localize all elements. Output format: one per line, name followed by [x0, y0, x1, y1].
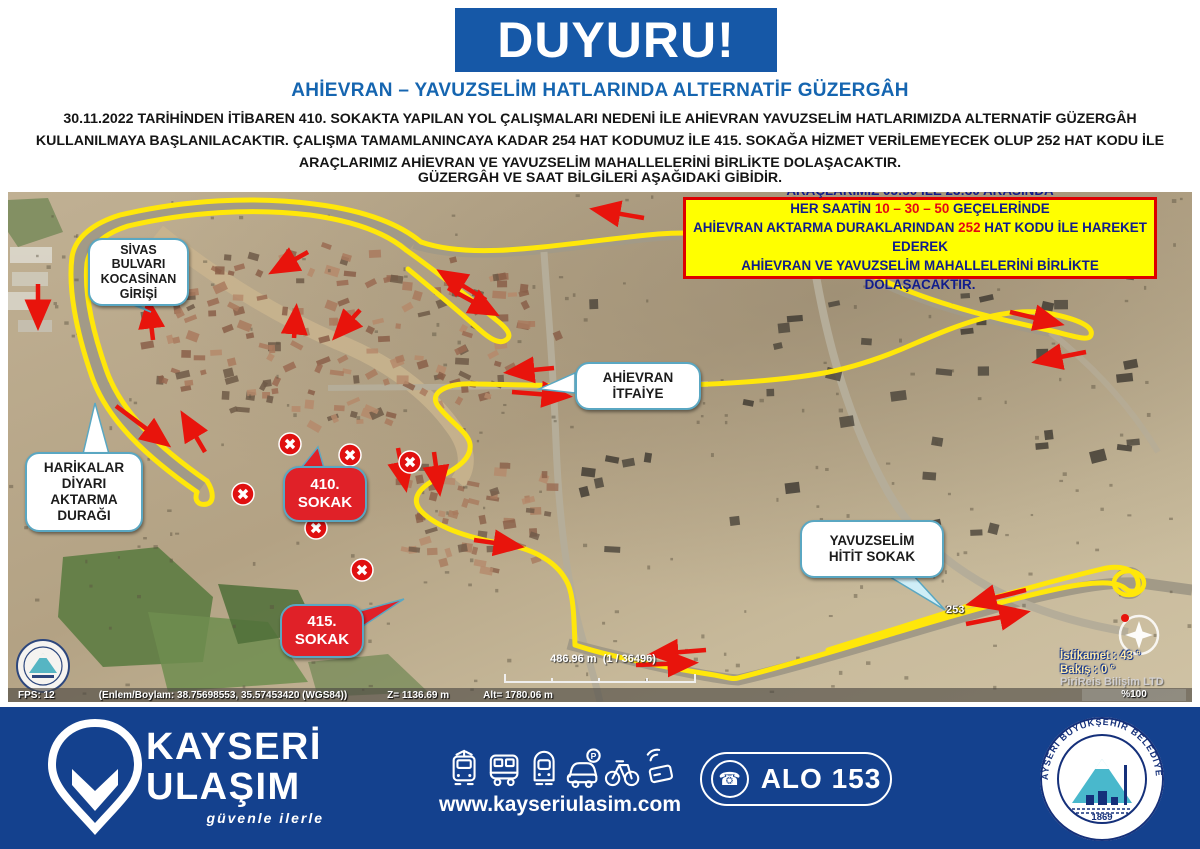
- website-url: www.kayseriulasim.com: [425, 793, 695, 817]
- callout-yavuzselim-hitit: YAVUZSELİM HİTİT SOKAK: [800, 520, 944, 578]
- altitude-readout: Alt= 1780.06 m: [483, 690, 553, 701]
- callout-410-sokak: 410. SOKAK: [283, 466, 367, 522]
- info-line-4: AHİEVRAN VE YAVUZSELİM MAHALLELERİNİ BİR…: [686, 257, 1154, 295]
- satellite-route-map: ARAÇLARIMIZ 05:50 İLE 23:30 ARASINDA HER…: [8, 192, 1192, 702]
- seal-year: 1869: [1091, 812, 1112, 823]
- brand-wordmark: KAYSERİ ULAŞIM: [146, 727, 322, 807]
- callout-harikalar-diyari: HARİKALAR DİYARI AKTARMA DURAĞI: [25, 452, 143, 532]
- contactless-card-icon: [648, 750, 673, 783]
- brand-line-1: KAYSERİ: [146, 727, 322, 767]
- callout-415-sokak: 415. SOKAK: [280, 604, 364, 658]
- bicycle-icon: [606, 761, 638, 785]
- brand-line-2: ULAŞIM: [146, 767, 322, 807]
- road-number-label: 253: [946, 604, 964, 616]
- car-parking-icon: P: [568, 749, 600, 787]
- schedule-info-box: ARAÇLARIMIZ 05:50 İLE 23:30 ARASINDA HER…: [683, 197, 1157, 279]
- title-text: DUYURU!: [497, 11, 735, 69]
- svg-text:P: P: [591, 751, 597, 761]
- subtitle: AHİEVRAN – YAVUZSELİM HATLARINDA ALTERNA…: [0, 80, 1200, 102]
- announcement-poster: DUYURU! AHİEVRAN – YAVUZSELİM HATLARINDA…: [0, 0, 1200, 849]
- compass-readout: İstikamet : 43 ° Bakış : 0 °: [1060, 650, 1192, 678]
- zoom-percent: %100: [1082, 689, 1186, 701]
- map-status-bar: FPS: 12 (Enlem/Boylam: 38.75698553, 35.5…: [8, 688, 1192, 702]
- callout-sivas-bulvari: SİVAS BULVARI KOCASİNAN GİRİŞİ: [88, 238, 189, 306]
- call-center-number: ALO 153: [761, 763, 882, 795]
- map-scale-text: 486.96 m (1 / 36496): [488, 653, 718, 665]
- phone-icon: ☎: [711, 760, 749, 798]
- announcement-footnote: GÜZERGÂH VE SAAT BİLGİLERİ AŞAĞIDAKİ GİB…: [14, 170, 1186, 186]
- map-seal-watermark: [17, 640, 69, 692]
- title-banner: DUYURU!: [455, 8, 777, 72]
- bus-icon: [491, 756, 518, 785]
- tram-icon: [454, 751, 475, 784]
- fps-readout: FPS: 12: [18, 690, 55, 701]
- call-center-badge: ☎ ALO 153: [700, 752, 892, 806]
- brand-tagline: güvenle ilerle: [146, 810, 324, 826]
- footer-brand-bar: P KAYSERİ BÜYÜKŞEHİR BELEDİYESİ: [0, 707, 1200, 849]
- metro-icon: [535, 752, 554, 784]
- announcement-paragraph: 30.11.2022 TARİHİNDEN İTİBAREN 410. SOKA…: [14, 108, 1186, 174]
- callout-ahievran-itfaiye: AHİEVRAN İTFAİYE: [575, 362, 701, 410]
- heading-value: İstikamet : 43 °: [1060, 650, 1192, 664]
- info-line-3: AHİEVRAN AKTARMA DURAKLARINDAN 252 HAT K…: [686, 219, 1154, 257]
- z-readout: Z= 1136.69 m: [387, 690, 449, 701]
- location-pin-logo-icon: [52, 723, 138, 829]
- info-line-2: HER SAATİN 10 – 30 – 50 GEÇELERİNDE: [686, 200, 1154, 219]
- software-watermark: PiriReis Bilişim LTD: [1060, 676, 1192, 688]
- latlon-readout: (Enlem/Boylam: 38.75698553, 35.57453420 …: [99, 690, 347, 701]
- info-line-1: ARAÇLARIMIZ 05:50 İLE 23:30 ARASINDA: [686, 192, 1154, 200]
